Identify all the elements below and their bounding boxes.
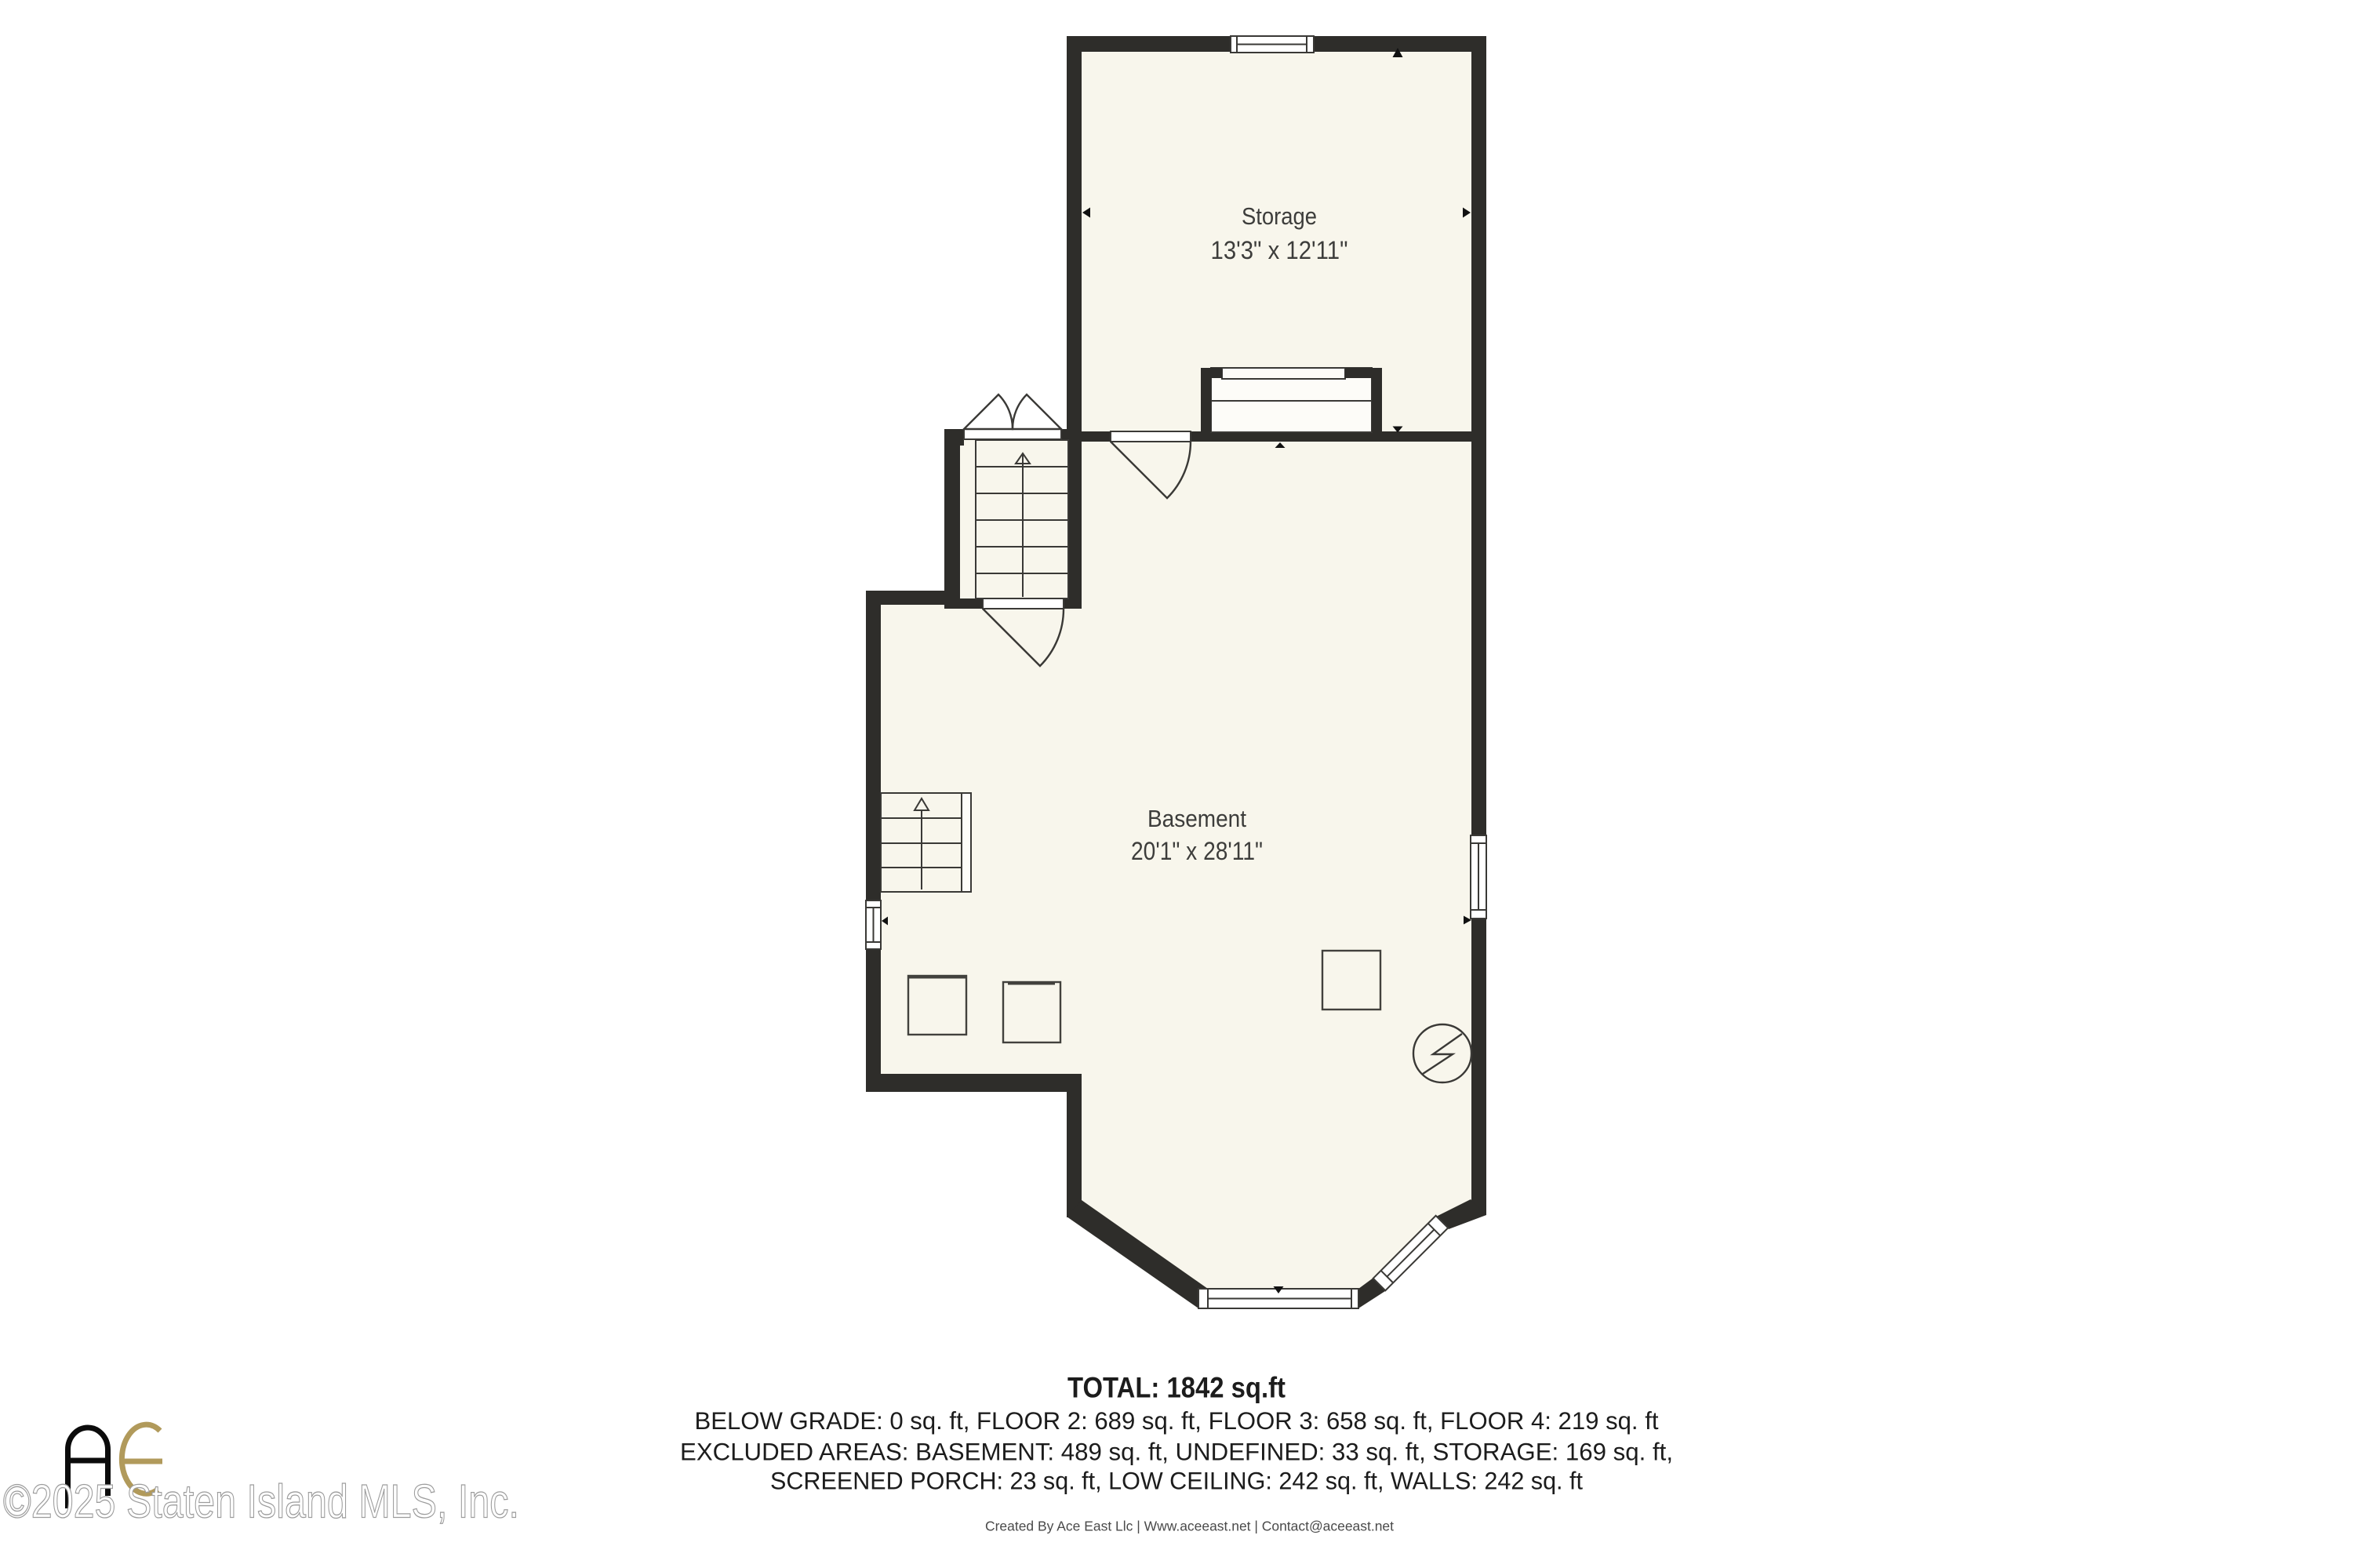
svg-text:Basement: Basement — [1147, 805, 1246, 832]
svg-text:EXCLUDED AREAS: BASEMENT: 489: EXCLUDED AREAS: BASEMENT: 489 sq. ft, UN… — [680, 1438, 1673, 1466]
svg-text:SCREENED PORCH: 23 sq. ft, LOW: SCREENED PORCH: 23 sq. ft, LOW CEILING: … — [770, 1467, 1583, 1495]
svg-text:TOTAL: 1842 sq.ft: TOTAL: 1842 sq.ft — [1067, 1371, 1286, 1404]
svg-text:20'1" x 28'11": 20'1" x 28'11" — [1131, 837, 1263, 865]
svg-text:©2025 Staten Island MLS, Inc.: ©2025 Staten Island MLS, Inc. — [3, 1475, 519, 1528]
svg-text:BELOW GRADE: 0 sq. ft, FLOOR 2: BELOW GRADE: 0 sq. ft, FLOOR 2: 689 sq. … — [695, 1406, 1659, 1435]
svg-text:Created By Ace East Llc | Www.: Created By Ace East Llc | Www.aceeast.ne… — [985, 1519, 1394, 1534]
svg-text:13'3" x 12'11": 13'3" x 12'11" — [1211, 236, 1348, 264]
svg-text:Storage: Storage — [1242, 202, 1317, 230]
